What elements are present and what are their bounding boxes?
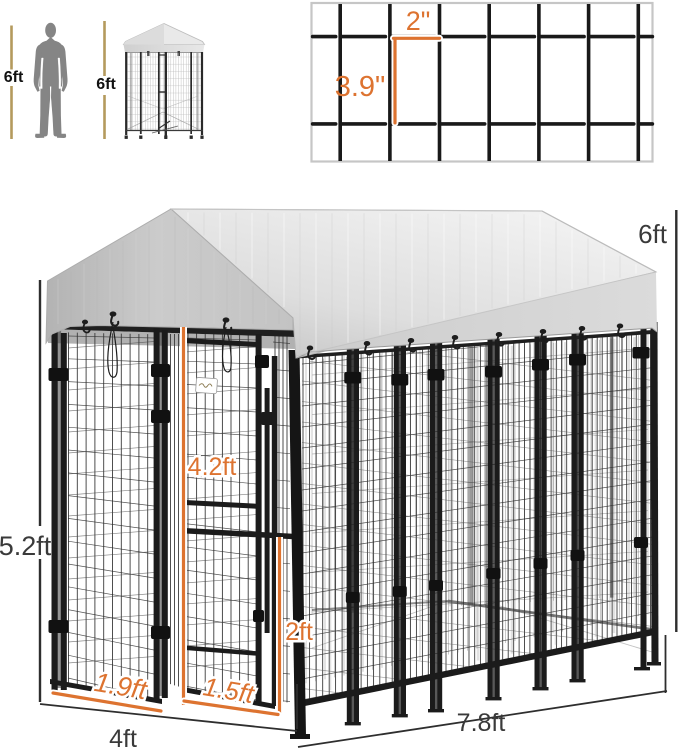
svg-text:3.9": 3.9" <box>335 71 386 103</box>
svg-text:2": 2" <box>406 6 431 36</box>
svg-text:6ft: 6ft <box>4 69 24 86</box>
svg-text:6ft: 6ft <box>96 76 116 93</box>
svg-text:4ft: 4ft <box>109 725 137 753</box>
svg-text:4.2ft: 4.2ft <box>188 453 237 481</box>
svg-text:2ft: 2ft <box>285 618 313 646</box>
svg-text:5.2ft: 5.2ft <box>0 531 52 561</box>
svg-text:6ft: 6ft <box>638 219 668 249</box>
svg-text:7.8ft: 7.8ft <box>457 709 506 737</box>
